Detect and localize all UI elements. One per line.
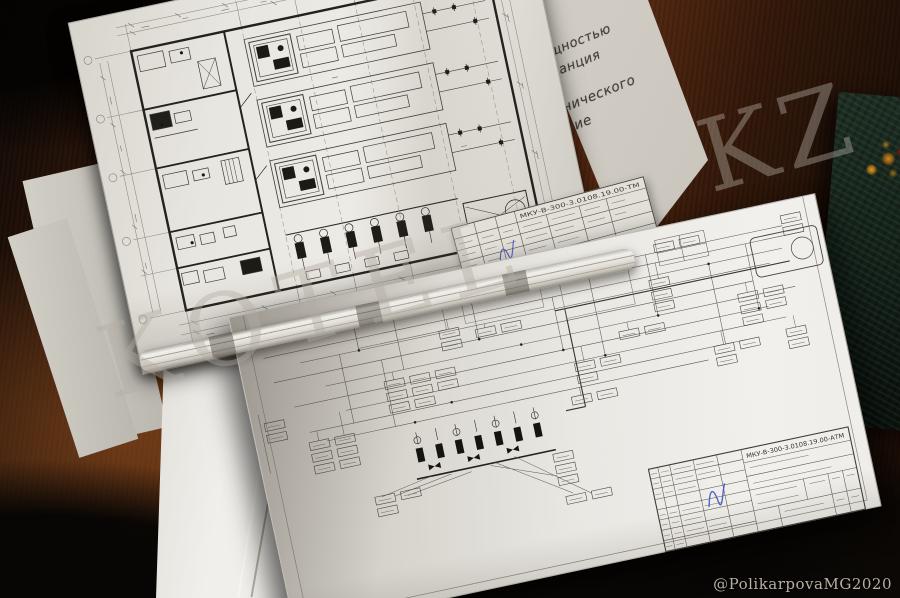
boiler-train	[270, 110, 519, 208]
valve-row	[407, 405, 555, 480]
photo-credit: @PolikarpovaMG2020	[713, 575, 892, 593]
book-gold-ornament	[852, 129, 900, 199]
boiler-train	[244, 0, 493, 86]
photo-blueprints-on-table: щностью танция нического ние	[0, 0, 900, 598]
boiler-train	[257, 49, 506, 147]
document-code: МКУ-В-300-3.0108.19.00-АТМ	[746, 432, 845, 460]
